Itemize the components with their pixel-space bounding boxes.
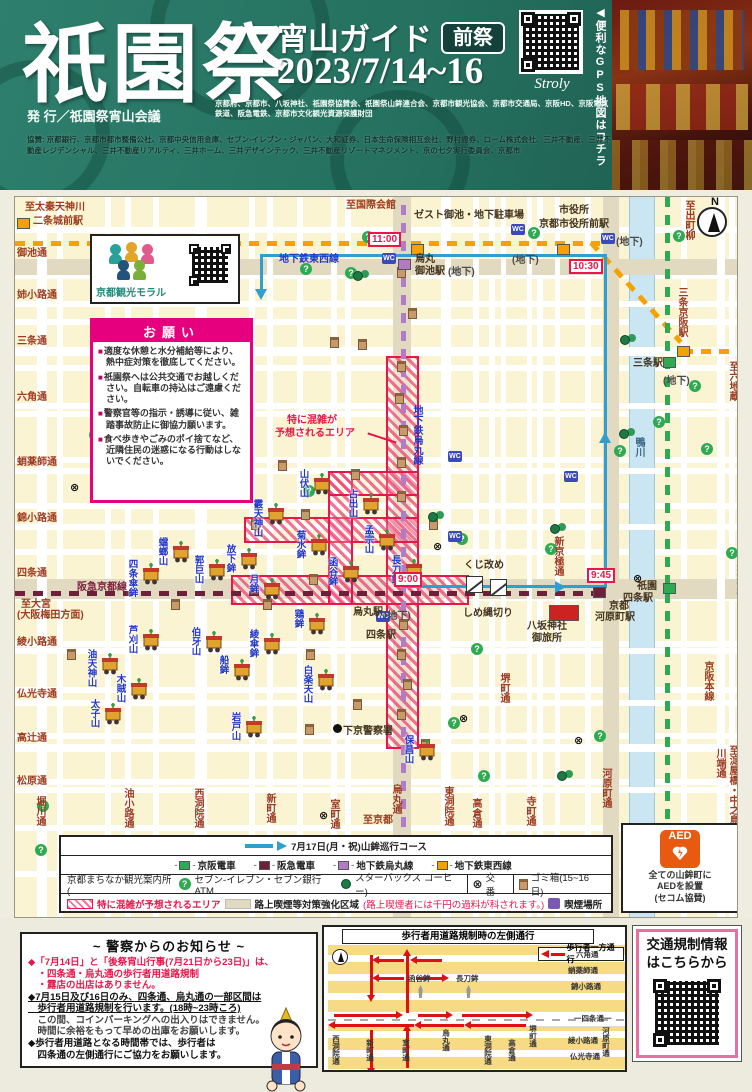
station-marker bbox=[398, 259, 411, 270]
trash-bin-icon bbox=[309, 574, 318, 585]
float-label: 油天神山 bbox=[86, 649, 96, 687]
gps-map-note: ◀便利なGPS地図はコチラ bbox=[592, 6, 608, 184]
trash-bin-icon bbox=[67, 649, 76, 660]
tozai-line-east bbox=[683, 349, 738, 354]
police-notice-title: ~ 警察からのお知らせ ~ bbox=[28, 936, 310, 955]
trash-bin-icon bbox=[351, 469, 360, 480]
request-items: 適度な休憩と水分補給等により、熱中症対策を徹底してください。 祇園祭へは公共交通… bbox=[98, 346, 245, 468]
place-label: 鴨川 bbox=[633, 437, 644, 457]
street-label: 仏光寺通 bbox=[17, 689, 57, 700]
parade-time-badge: 10:30 bbox=[569, 259, 603, 274]
starbucks-icon bbox=[353, 271, 363, 281]
float-icon-函谷鉾 bbox=[339, 561, 363, 588]
float-icon-四条傘鉾 bbox=[139, 563, 163, 590]
diagram-street-label: 函谷鉾 bbox=[408, 975, 431, 983]
police-notice-item: ◆7月15日及び16日のみ、四条通、烏丸通の一部区間は bbox=[28, 992, 310, 1004]
congestion-swatch bbox=[67, 899, 93, 909]
street-label: 高辻通 bbox=[17, 733, 47, 744]
info-point-icon: ? bbox=[478, 770, 490, 782]
float-label: 四条傘鉾 bbox=[127, 559, 137, 597]
float-icon-船鉾 bbox=[230, 659, 254, 686]
traffic-info-box: 交通規制情報 はこちらから bbox=[632, 925, 742, 1062]
kouban-icon: ⊗ bbox=[319, 811, 328, 822]
place-label: 地下鉄東西線 bbox=[279, 254, 339, 265]
trash-bin-icon bbox=[397, 649, 406, 660]
place-label: 至淀屋橋・中之島 bbox=[727, 745, 738, 825]
kyoto-morals-label: 京都観光モラル bbox=[96, 284, 166, 299]
float-label: 函谷鉾 bbox=[327, 557, 337, 586]
diagram-street-label: 一四条通一 bbox=[574, 1015, 612, 1023]
legend-smoke-spot-label: 喫煙場所 bbox=[564, 897, 602, 911]
place-label: 京阪本線 bbox=[702, 661, 713, 701]
float-label: 保昌山 bbox=[403, 735, 413, 764]
pedestrian-flow-diagram: 歩行者用道路規制時の左側通行 歩行者一方通行 六角通蛸薬師通錦小路通函谷鉾長刀鉾… bbox=[322, 925, 627, 1072]
route-arrow-north bbox=[599, 432, 611, 443]
mascot-illustration bbox=[258, 1006, 314, 1092]
place-label: (地下) bbox=[448, 267, 475, 278]
float-icon-伯牙山 bbox=[202, 631, 226, 658]
trash-bin-icon bbox=[397, 491, 406, 502]
legend-info-label: 京都まちなか観光案内所 ( bbox=[67, 872, 175, 897]
toilet-icon: WC bbox=[448, 451, 462, 462]
flow-arrow-head bbox=[464, 1021, 471, 1029]
kouban-icon: ⊗ bbox=[574, 736, 583, 747]
float-icon-占出山 bbox=[359, 493, 383, 520]
diagram-compass-icon bbox=[332, 949, 348, 965]
legend-route-label: 7月17日(月・祝)山鉾巡行コース bbox=[291, 839, 427, 853]
request-title: お願い bbox=[93, 321, 250, 342]
starbucks-icon bbox=[620, 335, 630, 345]
diagram-title: 歩行者用道路規制時の左側通行 bbox=[342, 929, 594, 944]
legend-rail-京阪電車: --京阪電車 bbox=[174, 858, 235, 872]
trash-bin-icon bbox=[408, 308, 417, 319]
place-label: 京都 bbox=[609, 601, 629, 612]
place-label: 特に混雑が bbox=[287, 415, 337, 426]
flow-arrow-head bbox=[446, 1011, 453, 1019]
parade-time-badge: 11:00 bbox=[368, 232, 401, 247]
float-label: 月鉾 bbox=[248, 574, 258, 593]
float-label: 菊水鉾 bbox=[295, 530, 305, 559]
place-label: 八坂神社 bbox=[734, 557, 738, 597]
street-label: 西洞院通 bbox=[192, 788, 203, 828]
flow-arrow-head bbox=[526, 1011, 533, 1019]
parade-time-badge: 9:45 bbox=[587, 568, 615, 583]
street-label: 姉小路通 bbox=[17, 290, 57, 301]
trash-bin-icon bbox=[278, 460, 287, 471]
diagram-street-label: 東洞院通 bbox=[484, 1035, 492, 1065]
float-label: 鶏鉾 bbox=[293, 609, 303, 628]
credits-organizers: 京都府、京都市、八坂神社、祇園祭協賛会、祇園祭山鉾連合会、京都市観光協会、京都市… bbox=[215, 99, 610, 119]
request-item: 食べ歩きやごみのポイ捨てなど、近隣住民の迷惑になる行動はしないでください。 bbox=[98, 434, 245, 468]
place-label: 烏丸 bbox=[415, 254, 435, 265]
float-icon-太子山 bbox=[101, 703, 125, 730]
flow-arrow-head bbox=[367, 1068, 375, 1072]
aed-icon-label: AED bbox=[668, 830, 691, 842]
diagram-street-label: 仏光寺通 bbox=[570, 1053, 600, 1061]
legend-711-label: セブン-イレブン・セブン銀行ATM bbox=[195, 872, 338, 897]
legend-trash-label: ゴミ箱(15~16日) bbox=[531, 870, 600, 898]
place-label: 京都市役所前駅 bbox=[539, 219, 609, 230]
smoking-spot-icon bbox=[548, 898, 560, 909]
trash-bin-icon bbox=[306, 649, 315, 660]
float-icon-蟷螂山 bbox=[169, 541, 193, 568]
map-legend: 7月17日(月・祝)山鉾巡行コース --京阪電車--阪急電車--地下鉄烏丸線--… bbox=[59, 835, 613, 913]
street-label: 錦小路通 bbox=[17, 513, 57, 524]
trash-bin-icon bbox=[397, 709, 406, 720]
festival-dates: 2023/7/14~16 bbox=[277, 50, 483, 93]
street-label: 御池通 bbox=[17, 248, 47, 259]
legend-congestion-label: 特に混雑が予想されるエリア bbox=[97, 897, 221, 911]
toilet-icon: WC bbox=[448, 531, 462, 542]
poster-page: 祇園祭 宵山ガイド 前祭 2023/7/14~16 Stroly ◀便利なGPS… bbox=[0, 0, 752, 1092]
place-label: 予想されるエリア bbox=[275, 428, 355, 439]
kouban-icon: ⊗ bbox=[70, 483, 79, 494]
one-way-shaft-icon bbox=[551, 953, 565, 956]
street-label: 蛸薬師通 bbox=[17, 457, 57, 468]
seven-eleven-icon: ? bbox=[179, 878, 191, 890]
float-icon-白楽天山 bbox=[314, 669, 338, 696]
legend-kouban-cell: ⊗交番 bbox=[467, 875, 509, 893]
street-band-堺町通 bbox=[501, 197, 506, 918]
float-label: 綾傘鉾 bbox=[248, 629, 258, 658]
compass-icon bbox=[697, 207, 727, 237]
kouban-icon: ⊗ bbox=[433, 542, 442, 553]
street-label: 六角通 bbox=[17, 392, 47, 403]
flow-arrow-head bbox=[372, 974, 379, 982]
aed-box: AED 全ての山鉾町に AEDを設置 (セコム協賛) bbox=[621, 823, 738, 913]
flow-arrow-head bbox=[414, 1021, 421, 1029]
float-icon-岩戸山 bbox=[242, 716, 266, 743]
float-icon-山伏山 bbox=[310, 473, 334, 500]
flow-arrow-shaft bbox=[420, 1024, 464, 1027]
toilet-icon: WC bbox=[601, 233, 615, 244]
flow-arrow-head bbox=[396, 1011, 403, 1019]
street-label: 三条通 bbox=[17, 336, 47, 347]
place-label: 至京都 bbox=[363, 815, 393, 826]
place-label: (地下) bbox=[512, 255, 539, 266]
float-label: 白楽天山 bbox=[302, 665, 312, 703]
police-notice-item: ・四条通・烏丸通の歩行者用道路規制 bbox=[28, 969, 310, 981]
station-marker bbox=[677, 346, 690, 357]
station-marker bbox=[593, 587, 606, 598]
place-label: (大阪梅田方面) bbox=[17, 610, 84, 621]
flow-arrow-shaft bbox=[470, 1024, 526, 1027]
starbucks-icon bbox=[428, 512, 438, 522]
legend-kouban-label: 交番 bbox=[486, 870, 504, 898]
smoke-zone-swatch bbox=[225, 899, 251, 909]
flow-arrow-shaft bbox=[462, 1014, 526, 1017]
float-icon-霰天神山 bbox=[264, 503, 288, 530]
trash-bin-icon bbox=[399, 425, 408, 436]
street-label: 寺町通 bbox=[524, 796, 535, 826]
flow-arrow-head bbox=[410, 956, 417, 964]
flow-arrow-head bbox=[442, 974, 449, 982]
request-item: 適度な休憩と水分補給等により、熱中症対策を徹底してください。 bbox=[98, 346, 245, 369]
place-label: 祇園 bbox=[637, 581, 657, 592]
trash-bin-icon bbox=[301, 509, 310, 520]
float-label: 放下鉾 bbox=[225, 544, 235, 573]
place-label: 至国際会館 bbox=[346, 200, 396, 211]
street-label: 松原通 bbox=[17, 776, 47, 787]
trash-bin-icon bbox=[358, 339, 367, 350]
diagram-street-label: 蛸薬師通 bbox=[568, 967, 598, 975]
trash-bin-icon bbox=[397, 361, 406, 372]
flow-arrow-shaft bbox=[378, 959, 404, 962]
trash-bin-icon bbox=[397, 457, 406, 468]
police-station-dot bbox=[333, 724, 342, 733]
route-arrow-swatch bbox=[277, 841, 287, 851]
flow-arrow-shaft bbox=[378, 977, 404, 980]
place-label: (地下) bbox=[384, 611, 411, 622]
header-banner: 祇園祭 宵山ガイド 前祭 2023/7/14~16 Stroly ◀便利なGPS… bbox=[0, 0, 752, 190]
legend-rail-阪急電車: --阪急電車 bbox=[254, 858, 315, 872]
trash-bin-icon bbox=[519, 879, 528, 890]
kyoto-morals-box: 京都観光モラル bbox=[90, 234, 240, 304]
place-label: (地下) bbox=[663, 376, 690, 387]
place-label: ゼスト御池・地下駐車場 bbox=[414, 210, 524, 221]
float-label: 伯牙山 bbox=[190, 627, 200, 656]
request-notice-box: お願い 適度な休憩と水分補給等により、熱中症対策を徹底してください。 祇園祭へは… bbox=[90, 318, 253, 503]
float-photo bbox=[612, 0, 752, 190]
street-band-高辻通 bbox=[15, 744, 738, 752]
diagram-street-label: 長刀鉾 bbox=[456, 975, 479, 983]
morals-qr-code bbox=[188, 243, 232, 287]
shimenawa-box-icon bbox=[490, 579, 507, 596]
station-marker bbox=[549, 605, 579, 621]
street-label: 川端通 bbox=[714, 748, 725, 778]
one-way-arrow-icon bbox=[541, 950, 549, 958]
place-label: 四条駅 bbox=[366, 630, 396, 641]
credits-sponsors: 協賛: 京都銀行、京都市都市整備公社、京都中央信用金庫、セブン-イレブン・ジャパ… bbox=[27, 135, 612, 156]
legend-smoke-zone-label: 路上喫煙等対策強化区域 bbox=[255, 897, 360, 911]
float-label: 占出山 bbox=[347, 489, 357, 518]
karasuma-subway-line bbox=[401, 205, 406, 911]
kouban-icon: ⊗ bbox=[459, 714, 468, 725]
street-label: 綾小路通 bbox=[17, 637, 57, 648]
flow-arrow-head bbox=[403, 949, 411, 956]
float-label: 船鉾 bbox=[218, 655, 228, 674]
place-label: 至太秦天神川 bbox=[25, 202, 85, 213]
place-label: 阪急京都線 bbox=[77, 582, 127, 593]
legend-trash-cell: ゴミ箱(15~16日) bbox=[513, 875, 605, 893]
request-item: 警察官等の指示・誘導に従い、雑踏事故防止に御協力願います。 bbox=[98, 408, 245, 431]
route-arrow-east bbox=[555, 581, 566, 593]
diagram-street-label: 河原町通 bbox=[602, 1027, 610, 1057]
diagram-street-label: 高倉通 bbox=[508, 1039, 516, 1062]
starbucks-icon bbox=[550, 524, 560, 534]
bottom-section: ~ 警察からのお知らせ ~ ◆「7月14日」と「後祭宵山行事(7月21日から23… bbox=[0, 918, 752, 1092]
street-label: 烏丸通 bbox=[390, 784, 401, 814]
diagram-street-label: 西洞院通 bbox=[332, 1035, 340, 1065]
toilet-icon: WC bbox=[382, 253, 396, 264]
flow-arrow-head bbox=[372, 956, 379, 964]
stroly-qr-code bbox=[519, 10, 583, 74]
info-point-icon: ? bbox=[594, 730, 606, 742]
place-label: 二条城前駅 bbox=[33, 216, 83, 227]
float-label: 蟷螂山 bbox=[157, 537, 167, 566]
place-label: 地下鉄烏丸線 bbox=[411, 405, 422, 465]
trash-bin-icon bbox=[353, 699, 362, 710]
flow-arrow-head bbox=[403, 1024, 411, 1031]
route-line-swatch bbox=[245, 844, 273, 848]
police-notice-item: ◆「7月14日」と「後祭宵山行事(7月21日から23日)」は、 bbox=[28, 957, 310, 969]
place-label: 三条京阪駅 bbox=[676, 287, 687, 337]
place-label: 至六地蔵 bbox=[727, 361, 738, 401]
float-label: 郭巨山 bbox=[193, 555, 203, 584]
flow-arrow-shaft bbox=[418, 1014, 446, 1017]
street-band-綾小路通 bbox=[15, 648, 738, 654]
diagram-street-label: 錦小路通 bbox=[571, 983, 601, 991]
float-icon-綾傘鉾 bbox=[260, 633, 284, 660]
street-label: 高倉通 bbox=[470, 798, 481, 828]
info-point-icon: ? bbox=[701, 443, 713, 455]
place-label: 至出町柳 bbox=[683, 200, 694, 240]
place-label: 烏丸駅 bbox=[353, 607, 383, 618]
starbucks-icon bbox=[619, 429, 629, 439]
legend-sb-label: スターバックス コーヒー) bbox=[355, 870, 462, 898]
diagram-street-label: 新町通 bbox=[366, 1039, 374, 1062]
diagram-street-label: 堺町通 bbox=[529, 1025, 537, 1048]
street-label: 堀川通 bbox=[34, 796, 45, 826]
street-label: 四条通 bbox=[17, 568, 47, 579]
info-point-icon: ? bbox=[471, 643, 483, 655]
street-label: 東洞院通 bbox=[442, 786, 453, 826]
legend-info-row: 京都まちなか観光案内所 ( ? セブン-イレブン・セブン銀行ATM スターバック… bbox=[61, 875, 611, 894]
diagram-street-label: 室町通 bbox=[402, 1039, 410, 1062]
traffic-info-inner: 交通規制情報 はこちらから bbox=[636, 929, 738, 1058]
info-point-icon: ? bbox=[35, 844, 47, 856]
toilet-icon: WC bbox=[511, 224, 525, 235]
float-label: 芦刈山 bbox=[127, 625, 137, 654]
flow-arrow-head bbox=[367, 995, 375, 1002]
legend-route-row: 7月17日(月・祝)山鉾巡行コース bbox=[61, 837, 611, 856]
float-label: 木賊山 bbox=[115, 674, 125, 703]
info-point-icon: ? bbox=[614, 445, 626, 457]
parade-route-kawaramachi bbox=[604, 254, 607, 588]
flow-arrow-shaft bbox=[406, 955, 409, 1013]
stroly-label: Stroly bbox=[524, 76, 580, 93]
place-label: 御旅所 bbox=[532, 633, 562, 644]
station-marker bbox=[17, 218, 30, 229]
float-label: 霰天神山 bbox=[252, 499, 262, 537]
flow-arrow-shaft bbox=[416, 959, 442, 962]
float-label: 山伏山 bbox=[298, 469, 308, 498]
place-label: 八坂神社 bbox=[527, 621, 567, 632]
aed-heart-icon bbox=[671, 845, 689, 861]
trash-bin-icon bbox=[305, 724, 314, 735]
police-notice-item: ・露店の出店はありません。 bbox=[28, 980, 310, 992]
traffic-info-line2: はこちらから bbox=[641, 954, 733, 972]
street-band-川端通 bbox=[717, 197, 725, 918]
trash-bin-icon bbox=[171, 599, 180, 610]
station-marker bbox=[557, 244, 570, 255]
float-label: 岩戸山 bbox=[230, 712, 240, 741]
legend-smoke-zone-note: (路上喫煙者には千円の過料が科されます。) bbox=[363, 897, 544, 911]
aed-text-line1: 全ての山鉾町に bbox=[623, 870, 737, 881]
street-label: 河原町通 bbox=[600, 768, 611, 808]
place-label: 御池駅 bbox=[415, 266, 445, 277]
place-label: しめ縄切り bbox=[463, 608, 513, 619]
float-icon-孟宗山 bbox=[375, 529, 399, 556]
publisher-line: 発 行／祇園祭宵山会議 bbox=[27, 106, 161, 125]
float-label: 孟宗山 bbox=[363, 525, 373, 554]
trash-bin-icon bbox=[395, 393, 404, 404]
street-label: 室町通 bbox=[328, 799, 339, 829]
route-arrow-south bbox=[255, 289, 267, 300]
trash-bin-icon bbox=[403, 679, 412, 690]
info-point-icon: ? bbox=[689, 380, 701, 392]
map-canvas: 京都観光モラル お願い 適度な休憩と水分補給等により、熱中症対策を徹底してくださ… bbox=[14, 196, 738, 918]
float-icon-鶏鉾 bbox=[305, 613, 329, 640]
request-item: 祇園祭へは公共交通でお越しください。自転車の持込はご遠慮ください。 bbox=[98, 372, 245, 406]
parade-route-end bbox=[260, 254, 263, 290]
legend-zones-row: 特に混雑が予想されるエリア 路上喫煙等対策強化区域 (路上喫煙者には千円の過料が… bbox=[61, 894, 611, 913]
aed-text-line3: (セコム協賛) bbox=[623, 893, 737, 904]
float-icon-放下鉾 bbox=[237, 548, 261, 575]
traffic-qr-code bbox=[651, 977, 723, 1049]
float-label: 太子山 bbox=[89, 699, 99, 728]
place-label: 市役所 bbox=[559, 205, 589, 216]
float-icon-木賊山 bbox=[127, 678, 151, 705]
traffic-info-line1: 交通規制情報 bbox=[641, 936, 733, 954]
kujiaratame-box-icon bbox=[466, 576, 483, 593]
float-icon-保昌山 bbox=[415, 739, 439, 766]
street-label: 油小路通 bbox=[122, 788, 133, 828]
starbucks-icon bbox=[557, 771, 567, 781]
flow-arrow-head bbox=[328, 1021, 335, 1029]
float-icon-芦刈山 bbox=[139, 629, 163, 656]
kyoto-morals-logo bbox=[104, 244, 160, 280]
keihan-line bbox=[665, 197, 670, 918]
place-label: くじ改め bbox=[464, 560, 504, 571]
flow-arrow-shaft bbox=[334, 1024, 414, 1027]
place-label: 下京警察署 bbox=[343, 726, 393, 737]
float-icon-月鉾 bbox=[260, 578, 284, 605]
place-label: 三条駅 bbox=[633, 358, 663, 369]
street-label: 新町通 bbox=[264, 793, 275, 823]
parade-time-badge: 9:00 bbox=[394, 572, 422, 587]
diagram-street-label: 六角通 bbox=[576, 951, 599, 959]
toilet-icon: WC bbox=[564, 471, 578, 482]
place-label: 至大宮 bbox=[21, 599, 51, 610]
aed-icon: AED bbox=[660, 830, 700, 868]
street-label: 堺町通 bbox=[498, 673, 509, 703]
place-label: (地下) bbox=[616, 237, 643, 248]
flow-arrow-shaft bbox=[334, 1014, 396, 1017]
starbucks-icon bbox=[341, 879, 351, 889]
diagram-street-label: 綾小路通 bbox=[568, 1037, 598, 1045]
info-point-icon: ? bbox=[653, 416, 665, 428]
aed-text-line2: AEDを設置 bbox=[623, 881, 737, 892]
place-label: 河原町駅 bbox=[595, 612, 635, 623]
diagram-street-label: 烏丸通 bbox=[442, 1029, 450, 1052]
trash-bin-icon bbox=[330, 337, 339, 348]
station-marker bbox=[663, 583, 676, 594]
station-marker bbox=[663, 357, 676, 368]
street-label: 新京極通 bbox=[552, 536, 563, 576]
